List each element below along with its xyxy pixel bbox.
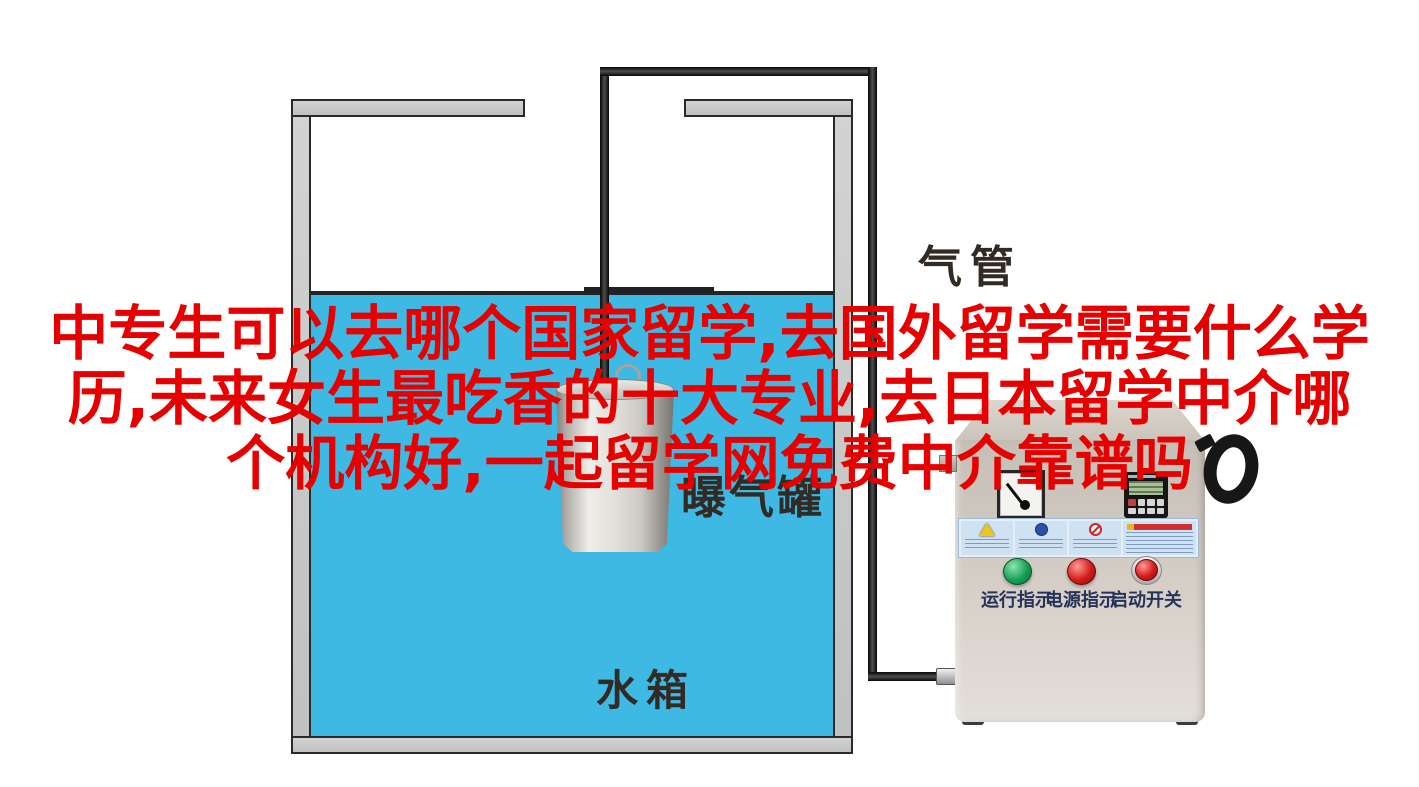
diagram-canvas: 气管 曝气罐 水箱 bbox=[0, 0, 1419, 787]
headline-line-3: 个机构好,一起留学网免费中介靠谱吗 bbox=[0, 431, 1419, 496]
tank-lip-left bbox=[291, 99, 525, 117]
controller-key bbox=[1128, 508, 1136, 515]
tank-wall-bottom bbox=[291, 736, 853, 754]
controller-key bbox=[1128, 499, 1136, 506]
warning-cell-prohibition bbox=[1069, 521, 1121, 555]
mandatory-circle-icon bbox=[1035, 523, 1048, 536]
controller-key bbox=[1147, 499, 1155, 506]
start-switch-button bbox=[1135, 559, 1158, 581]
headline-line-2: 历,未来女生最吃香的十大专业,去日本留学中介哪 bbox=[0, 366, 1419, 431]
notice-header-bar bbox=[1127, 524, 1193, 530]
controller-key bbox=[1147, 508, 1155, 515]
controller-key bbox=[1157, 499, 1165, 506]
controller-key bbox=[1138, 499, 1146, 506]
warning-label-strip bbox=[958, 518, 1199, 558]
controller-key bbox=[1138, 508, 1146, 515]
air-pipe-to-machine bbox=[868, 672, 942, 681]
prohibition-circle-icon bbox=[1089, 523, 1102, 536]
fine-print-lines bbox=[1073, 539, 1117, 549]
headline-line-1: 中专生可以去哪个国家留学,去国外留学需要什么学 bbox=[0, 301, 1419, 366]
water-tank-label: 水箱 bbox=[596, 657, 696, 718]
hazard-triangle-icon bbox=[979, 523, 995, 536]
start-switch-label: 启动开关 bbox=[1091, 586, 1201, 612]
prohibition-slash bbox=[1091, 525, 1100, 534]
warning-cell-electric bbox=[961, 521, 1013, 555]
run-indicator-light bbox=[1003, 558, 1032, 585]
power-indicator-light bbox=[1067, 558, 1096, 585]
fine-print-lines bbox=[965, 539, 1009, 549]
controller-key bbox=[1157, 508, 1165, 515]
headline-overlay: 中专生可以去哪个国家留学,去国外留学需要什么学 历,未来女生最吃香的十大专业,去… bbox=[0, 301, 1419, 496]
tank-lip-right bbox=[684, 99, 853, 117]
air-pipe-label: 气管 bbox=[918, 231, 1022, 295]
fine-print-lines bbox=[1126, 532, 1193, 555]
fine-print-lines bbox=[1019, 539, 1063, 549]
air-pipe-top-horizontal bbox=[600, 67, 877, 76]
warning-cell-notice-text bbox=[1123, 521, 1196, 555]
meter-knob bbox=[1020, 500, 1030, 510]
warning-cell-mandatory bbox=[1015, 521, 1067, 555]
controller-keypad bbox=[1128, 499, 1164, 514]
